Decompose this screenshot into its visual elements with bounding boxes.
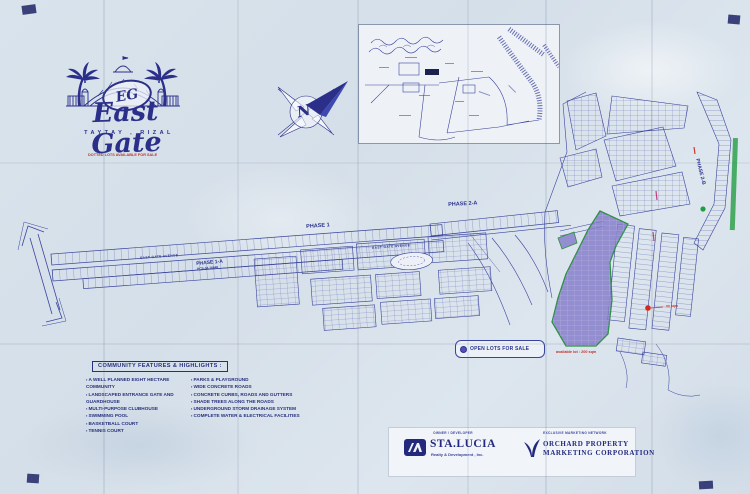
sta-lucia-logo-icon bbox=[404, 439, 426, 456]
features-title: COMMUNITY FEATURES & HIGHLIGHTS : bbox=[92, 361, 228, 372]
developer-name: STA.LUCIA bbox=[430, 438, 496, 450]
lot-size-annotation: xx sqm bbox=[666, 304, 678, 308]
feature-item: UNDERGROUND STORM DRAINAGE SYSTEM bbox=[191, 405, 321, 412]
scanned-site-map: EG East Gate TAYTAY , RIZAL DOTTED LOTS … bbox=[0, 0, 750, 494]
feature-item: SHADE TREES ALONG THE ROADS bbox=[191, 398, 321, 405]
marketing-line1: ORCHARD PROPERTY bbox=[543, 440, 655, 449]
corner-tape bbox=[699, 481, 713, 490]
developer-subtitle: Realty & Development , Inc. bbox=[431, 452, 483, 457]
site-marker bbox=[425, 69, 439, 75]
red-sale-note: DOTTED LOTS AVAILABLE FOR SALE bbox=[88, 153, 157, 157]
feature-item: PARKS & PLAYGROUND bbox=[191, 376, 321, 383]
feature-item: COMPLETE WATER & ELECTRICAL FACILITIES bbox=[191, 412, 321, 419]
marketing-caption: EXCLUSIVE MARKETING NETWORK bbox=[520, 431, 630, 435]
feature-item: A WELL PLANNED EIGHT HECTARE COMMUNITY bbox=[86, 376, 181, 391]
feature-item: CONCRETE CURBS, ROADS AND GUTTERS bbox=[191, 391, 321, 398]
feature-item: WIDE CONCRETE ROADS bbox=[191, 383, 321, 390]
corner-tape bbox=[728, 14, 741, 24]
legend-label: OPEN LOTS FOR SALE bbox=[470, 346, 529, 352]
features-column-1: A WELL PLANNED EIGHT HECTARE COMMUNITY L… bbox=[86, 376, 181, 434]
developer-caption: OWNER / DEVELOPER bbox=[398, 431, 508, 435]
tiny-street-labels bbox=[379, 57, 516, 116]
green-strip-marker bbox=[730, 138, 738, 230]
feature-item: TENNIS COURT bbox=[86, 427, 181, 434]
marketing-line2: MARKETING CORPORATION bbox=[543, 449, 655, 458]
community-features-panel: COMMUNITY FEATURES & HIGHLIGHTS : A WELL… bbox=[86, 354, 336, 434]
corner-tape bbox=[27, 474, 40, 484]
legend-open-lots: OPEN LOTS FOR SALE bbox=[455, 340, 545, 358]
feature-item: LANDSCAPED ENTRANCE GATE AND GUARDHOUSE bbox=[86, 391, 181, 406]
feature-item: MULTI-PURPOSE CLUBHOUSE bbox=[86, 405, 181, 412]
green-dot-marker bbox=[700, 206, 705, 211]
features-column-2: PARKS & PLAYGROUND WIDE CONCRETE ROADS C… bbox=[191, 376, 321, 434]
vicinity-map-inset bbox=[358, 24, 560, 144]
red-dot-marker bbox=[645, 305, 651, 311]
feature-item: SWIMMING POOL bbox=[86, 412, 181, 419]
available-lot-note: available lot : 200 sqm bbox=[556, 350, 596, 354]
project-name: East Gate bbox=[55, 95, 197, 162]
orchard-leaf-icon bbox=[524, 439, 540, 457]
corner-tape bbox=[21, 4, 36, 15]
compass-rose bbox=[270, 75, 355, 145]
river bbox=[371, 37, 443, 45]
marketing-name: ORCHARD PROPERTY MARKETING CORPORATION bbox=[543, 440, 655, 458]
project-location: TAYTAY , RIZAL bbox=[70, 130, 188, 136]
feature-item: BASKETBALL COURT bbox=[86, 420, 181, 427]
open-lot-dot-icon bbox=[460, 346, 467, 353]
